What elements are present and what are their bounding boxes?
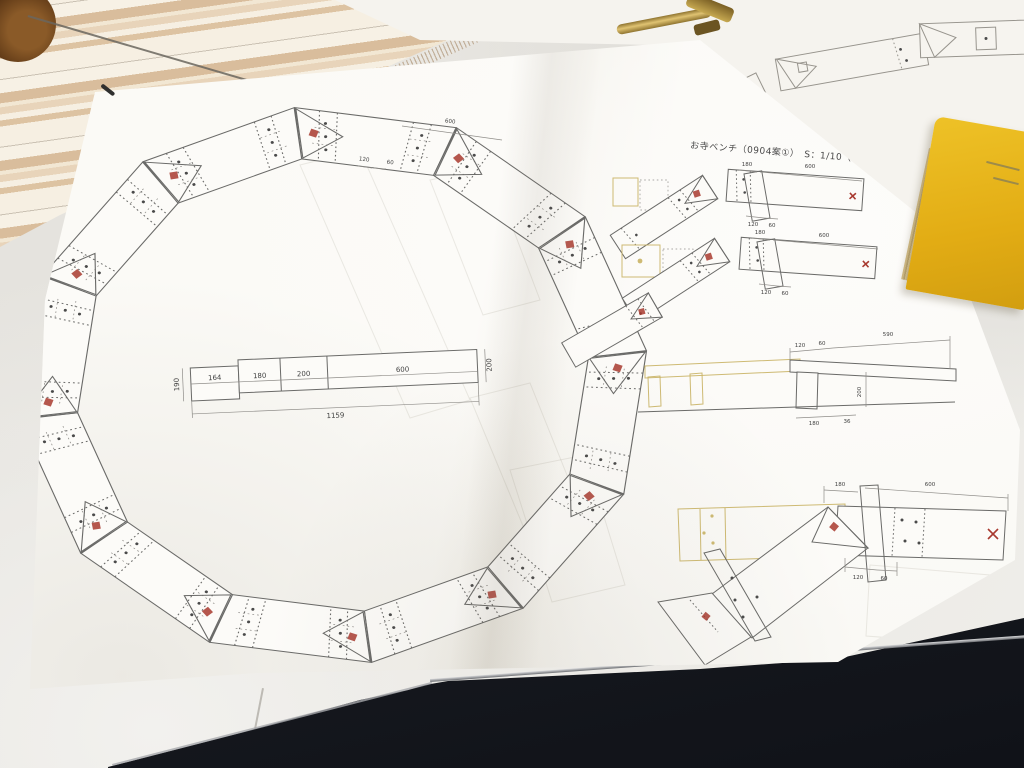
elev-seg1: 164 <box>208 374 222 383</box>
jd2-b: 60 <box>782 291 789 297</box>
jd1-b: 60 <box>769 223 776 229</box>
ss-height: 200 <box>857 386 863 397</box>
ss-length: 590 <box>883 332 894 338</box>
ring-dim-length: 600 <box>445 118 457 125</box>
ss-a: 120 <box>795 343 806 349</box>
jd2-length: 600 <box>819 233 830 239</box>
jd2-offset: 180 <box>755 230 766 236</box>
desk-photo: 600 120 60 164 180 200 600 1159 190 200 <box>0 0 1024 768</box>
bench-elevation-drawing: 164 180 200 600 1159 190 200 <box>172 349 495 427</box>
jp-b: 60 <box>881 576 888 582</box>
ss-c: 180 <box>809 421 820 427</box>
jp-length: 600 <box>925 482 936 488</box>
elev-total: 1159 <box>326 411 344 420</box>
jp-offset: 180 <box>835 482 846 488</box>
side-section-drawing: 120 60 590 200 180 36 <box>638 332 956 427</box>
elev-height-left: 190 <box>173 378 182 392</box>
ss-b: 60 <box>819 341 826 347</box>
elev-seg2: 180 <box>253 372 267 381</box>
ss-d: 36 <box>844 419 851 425</box>
jd1-offset: 180 <box>742 162 753 168</box>
elev-seg4: 600 <box>396 365 410 374</box>
jd2-a: 120 <box>761 290 772 296</box>
jd1-a: 120 <box>748 222 759 228</box>
ring-dim-b: 60 <box>386 160 394 167</box>
elev-height-right: 200 <box>485 358 494 372</box>
jp-a: 120 <box>853 575 864 581</box>
elev-seg3: 200 <box>297 370 311 379</box>
jd1-length: 600 <box>805 164 816 170</box>
